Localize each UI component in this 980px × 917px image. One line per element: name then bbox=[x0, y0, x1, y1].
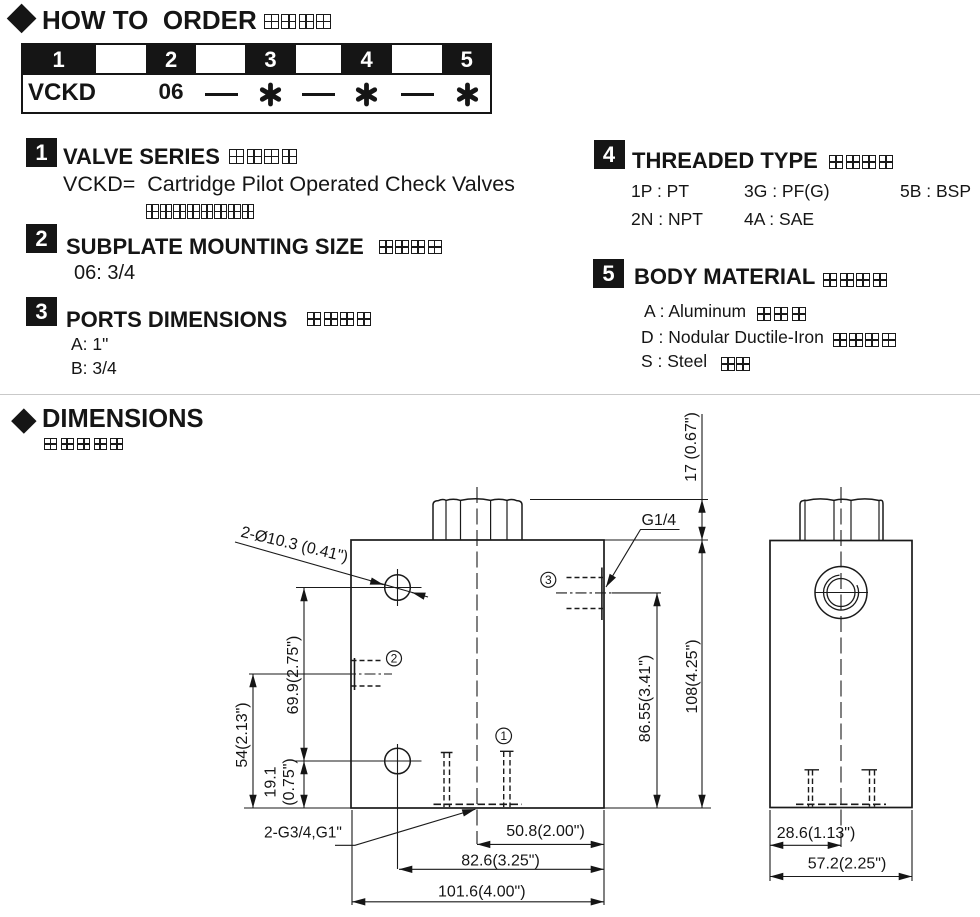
svg-text:54(2.13"): 54(2.13") bbox=[234, 702, 251, 767]
svg-text:50.8(2.00"): 50.8(2.00") bbox=[506, 823, 585, 840]
svg-text:2-Ø10.3 (0.41"): 2-Ø10.3 (0.41") bbox=[239, 524, 350, 566]
svg-text:(0.75"): (0.75") bbox=[281, 758, 298, 805]
svg-text:69.9(2.75"): 69.9(2.75") bbox=[285, 636, 302, 715]
svg-text:19.1: 19.1 bbox=[263, 766, 280, 797]
svg-text:G1/4: G1/4 bbox=[642, 512, 677, 529]
svg-text:2-G3/4,G1": 2-G3/4,G1" bbox=[264, 825, 342, 842]
svg-text:101.6(4.00"): 101.6(4.00") bbox=[438, 884, 526, 901]
svg-text:108(4.25"): 108(4.25") bbox=[684, 639, 701, 713]
svg-text:82.6(3.25"): 82.6(3.25") bbox=[461, 853, 540, 870]
svg-text:3: 3 bbox=[545, 573, 552, 587]
svg-text:28.6(1.13"): 28.6(1.13") bbox=[777, 825, 856, 842]
svg-text:1: 1 bbox=[500, 729, 507, 743]
svg-text:2: 2 bbox=[391, 652, 398, 666]
svg-text:17 (0.67"): 17 (0.67") bbox=[683, 412, 700, 482]
svg-text:57.2(2.25"): 57.2(2.25") bbox=[808, 856, 887, 873]
svg-text:86.55(3.41"): 86.55(3.41") bbox=[637, 655, 654, 743]
